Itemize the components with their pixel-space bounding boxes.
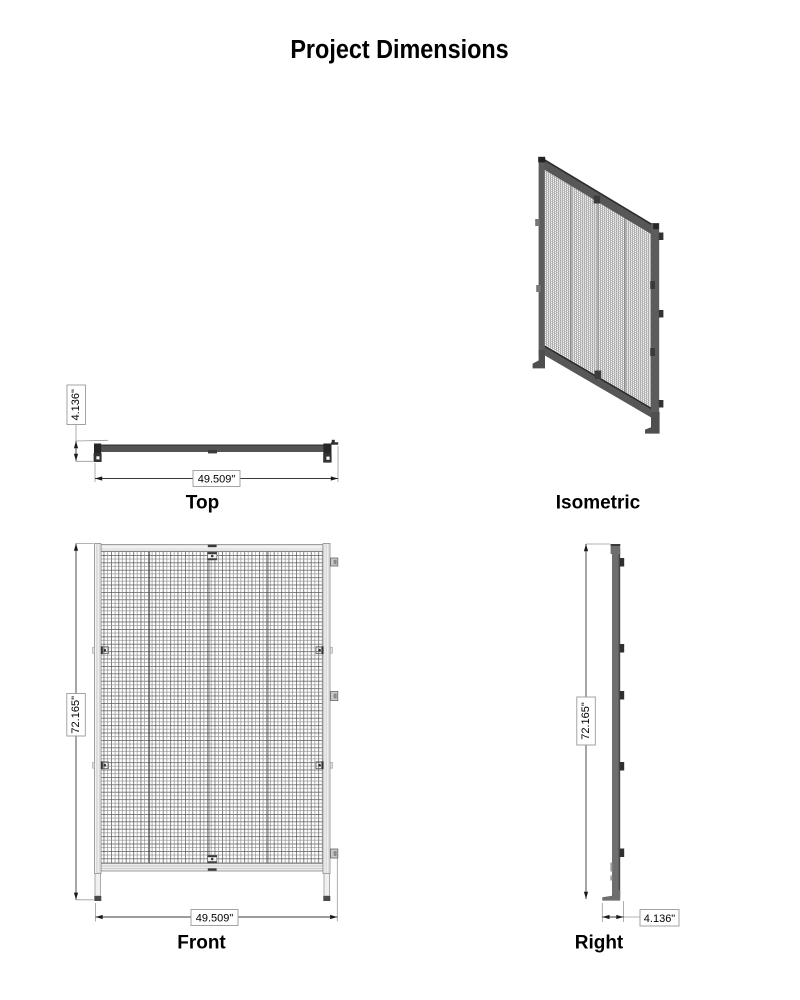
- svg-text:Front: Front: [177, 933, 226, 954]
- svg-text:Right: Right: [575, 933, 624, 954]
- svg-text:49.509": 49.509": [198, 474, 236, 486]
- svg-text:49.509": 49.509": [196, 913, 234, 925]
- svg-text:4.136": 4.136": [70, 389, 82, 421]
- svg-text:72.165": 72.165": [70, 696, 82, 734]
- svg-text:72.165": 72.165": [580, 702, 592, 740]
- svg-text:4.136": 4.136": [644, 913, 676, 925]
- svg-text:Top: Top: [186, 493, 219, 514]
- svg-text:Project Dimensions: Project Dimensions: [290, 36, 508, 64]
- svg-text:Isometric: Isometric: [556, 493, 641, 514]
